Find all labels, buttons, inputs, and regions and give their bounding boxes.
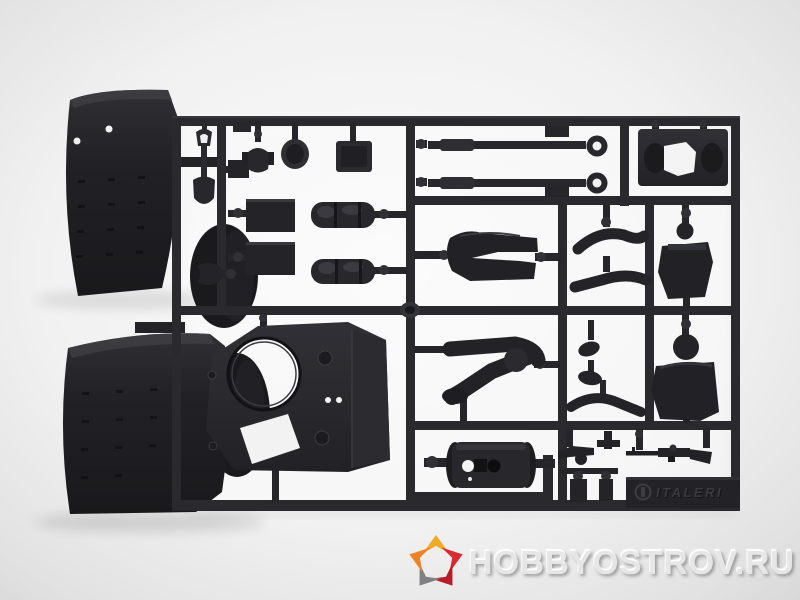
brand-marking: ITALERI: [656, 485, 723, 500]
watermark-star-icon: [405, 532, 467, 594]
sprue-photo: ITALERI ITALERI: [0, 0, 800, 600]
watermark: HobbyOstrov.Ru: [405, 532, 795, 594]
watermark-text: HobbyOstrov.Ru: [469, 544, 795, 582]
small-box-2: [599, 471, 613, 501]
photo-stage: ITALERI ITALERI HobbyOstrov.Ru: [0, 0, 800, 600]
brand-bar: ITALERI ITALERI: [626, 477, 740, 508]
mantlet-plate: [638, 120, 728, 186]
